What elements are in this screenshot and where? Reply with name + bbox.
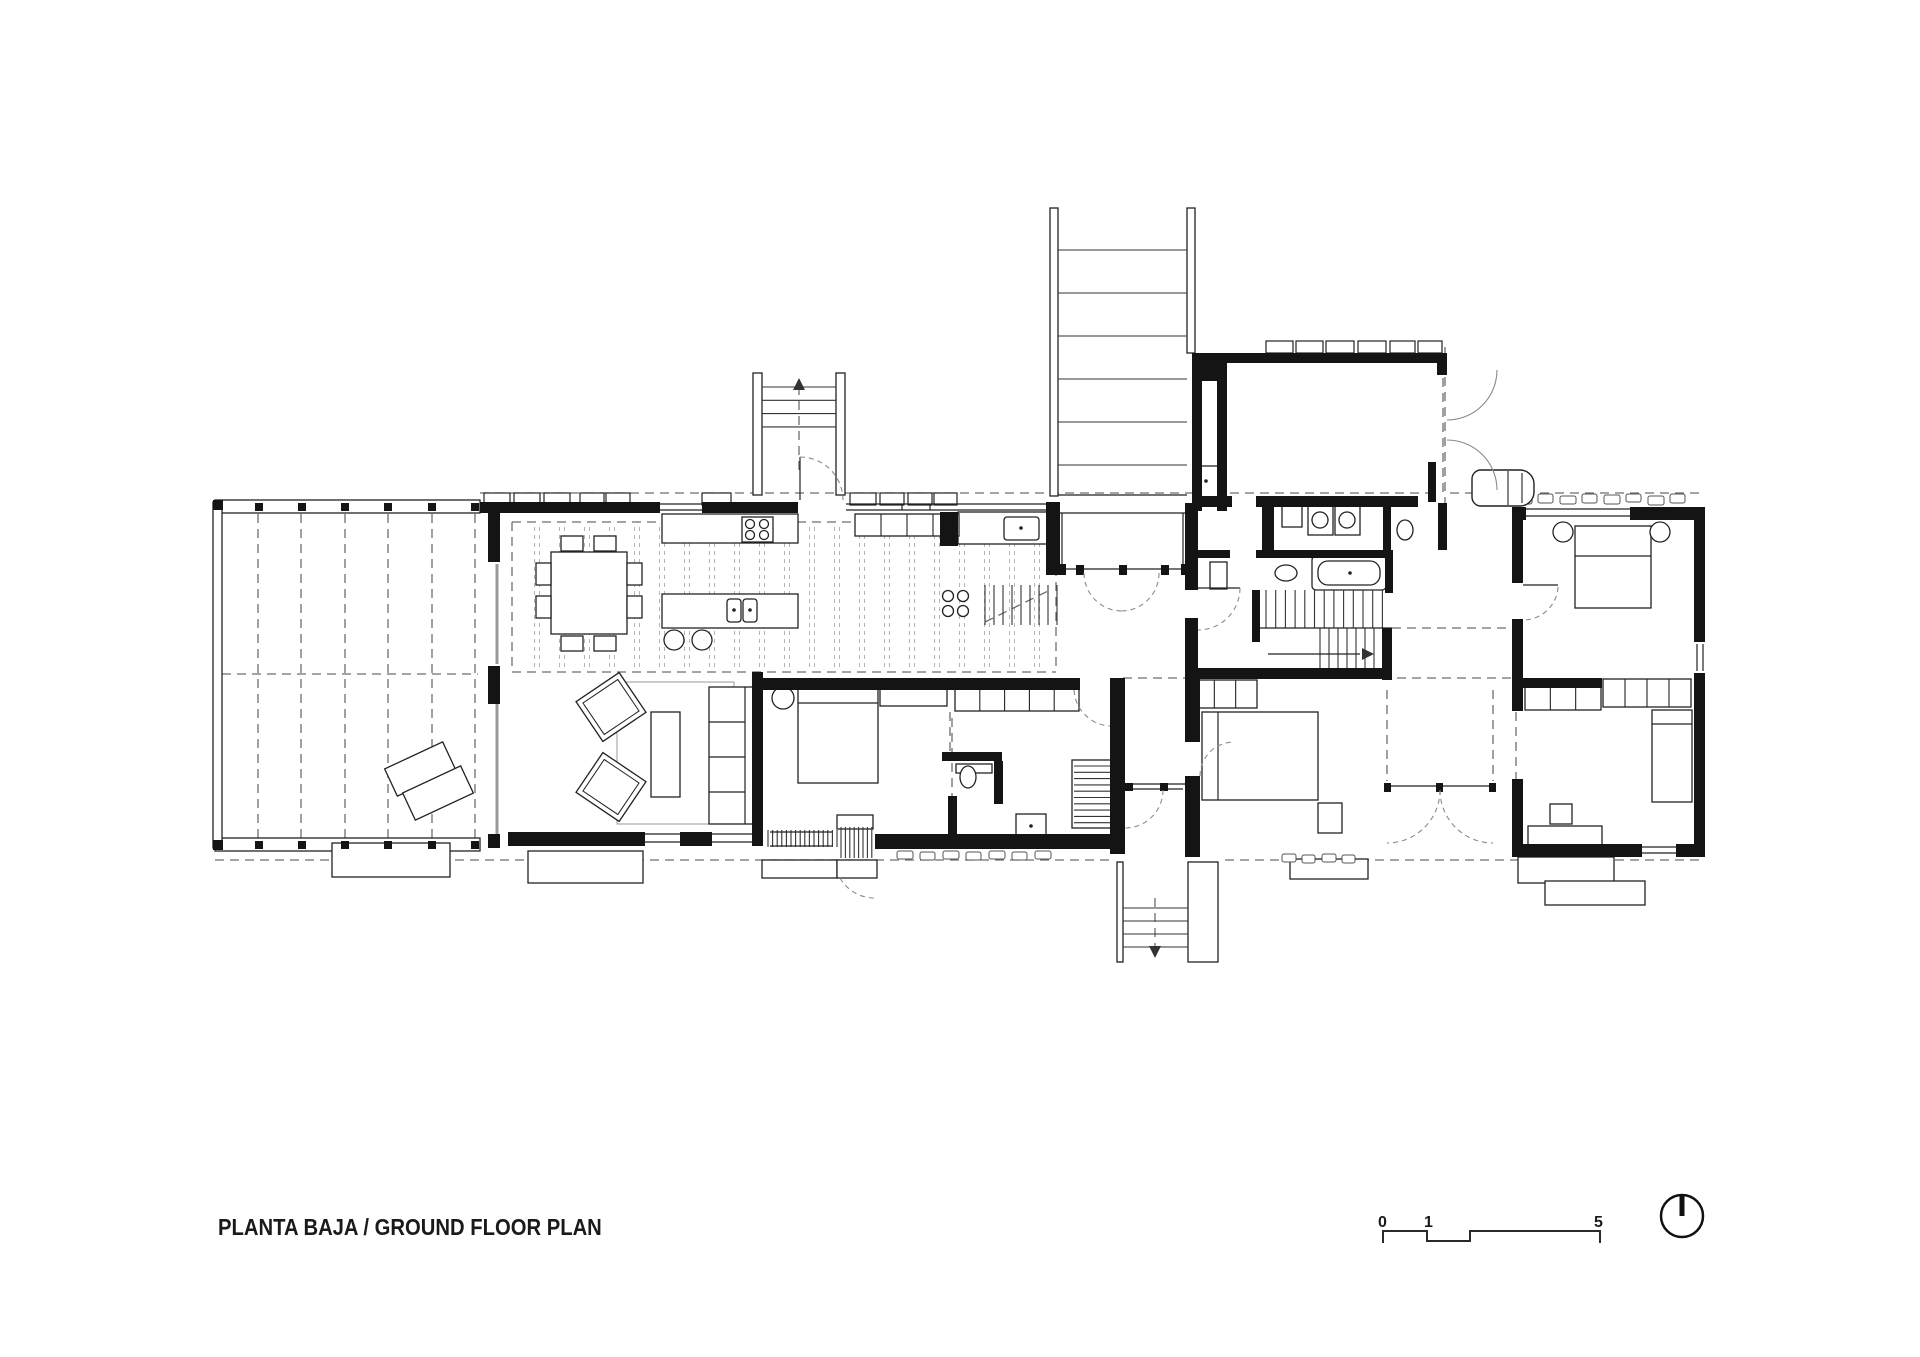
chair bbox=[1550, 804, 1572, 824]
wall bbox=[384, 503, 392, 511]
wall bbox=[763, 678, 1080, 690]
wall bbox=[1385, 550, 1393, 593]
door-swing bbox=[1121, 573, 1159, 611]
north-compass-icon bbox=[1661, 1195, 1703, 1237]
paving-stone bbox=[1648, 496, 1664, 505]
wall bbox=[341, 503, 349, 511]
wall bbox=[1185, 776, 1200, 857]
fixture bbox=[760, 520, 769, 529]
door-swing bbox=[1387, 790, 1440, 843]
toilet bbox=[1275, 565, 1297, 581]
chair bbox=[594, 536, 616, 551]
entry-step bbox=[1518, 857, 1614, 883]
deck-west-edge bbox=[213, 502, 222, 848]
entry-step bbox=[1545, 881, 1645, 905]
paving-stone bbox=[1322, 854, 1336, 862]
stair-rail bbox=[1117, 862, 1123, 962]
wall bbox=[488, 502, 500, 562]
rotated-furniture bbox=[385, 673, 646, 822]
fixture bbox=[1339, 512, 1355, 528]
window-sill bbox=[1390, 341, 1415, 353]
wall bbox=[1119, 565, 1127, 575]
planter bbox=[528, 851, 643, 883]
wall bbox=[702, 502, 798, 513]
wall bbox=[1262, 503, 1274, 550]
door-swing bbox=[1440, 790, 1493, 843]
wall bbox=[213, 840, 223, 850]
wall bbox=[488, 666, 500, 704]
paving-stone bbox=[1012, 852, 1027, 860]
fixture bbox=[1553, 522, 1573, 542]
wall bbox=[1192, 353, 1227, 381]
wall bbox=[1110, 678, 1125, 854]
dining-table bbox=[551, 552, 627, 634]
wall bbox=[1437, 353, 1447, 375]
fixture bbox=[1650, 522, 1670, 542]
paving-stone bbox=[1538, 494, 1553, 503]
wardrobe bbox=[955, 687, 1079, 711]
wall bbox=[471, 503, 479, 511]
paving-stone bbox=[966, 852, 981, 860]
bed bbox=[1575, 526, 1651, 608]
wall bbox=[1076, 565, 1084, 575]
wall bbox=[1512, 619, 1523, 711]
car bbox=[1472, 470, 1534, 506]
armchair bbox=[576, 673, 646, 742]
wall bbox=[1438, 503, 1447, 550]
wall bbox=[1383, 503, 1391, 550]
window-sill bbox=[1418, 341, 1442, 353]
wall bbox=[1185, 503, 1198, 590]
direction-arrow bbox=[1149, 946, 1161, 958]
chair bbox=[561, 636, 583, 651]
wall bbox=[1382, 628, 1392, 680]
window-sill bbox=[1358, 341, 1386, 353]
wall bbox=[942, 752, 1002, 761]
wall bbox=[1630, 507, 1705, 520]
wall bbox=[508, 832, 645, 846]
bed bbox=[1202, 712, 1318, 800]
wardrobe bbox=[1525, 687, 1601, 710]
wall bbox=[940, 512, 958, 546]
wall bbox=[875, 834, 1112, 849]
wardrobe bbox=[1193, 680, 1257, 708]
wall bbox=[1185, 678, 1200, 742]
wall bbox=[1512, 844, 1642, 857]
chair bbox=[627, 563, 642, 585]
wall bbox=[1694, 673, 1705, 857]
wall bbox=[428, 503, 436, 511]
door-swings bbox=[800, 370, 1558, 898]
paving-stone bbox=[1626, 494, 1641, 502]
wall bbox=[1676, 844, 1705, 857]
drawing-sheet: 0 1 5 PLANTA BAJA / GROUND FLOOR PLAN bbox=[0, 0, 1920, 1357]
wall bbox=[480, 502, 660, 513]
window-sill bbox=[934, 493, 957, 505]
window-sill bbox=[880, 493, 904, 505]
wall bbox=[341, 841, 349, 849]
window-sill bbox=[1296, 341, 1323, 353]
wall bbox=[752, 672, 763, 846]
chair bbox=[594, 636, 616, 651]
wall bbox=[213, 500, 223, 510]
wall bbox=[255, 841, 263, 849]
wall bbox=[1161, 565, 1169, 575]
fixture bbox=[692, 630, 712, 650]
toilet bbox=[960, 766, 976, 788]
paving-stone bbox=[1282, 854, 1296, 862]
paving-stone bbox=[1342, 855, 1355, 863]
door-swing bbox=[840, 878, 877, 898]
wall bbox=[994, 761, 1003, 804]
window-sill bbox=[850, 493, 876, 505]
scale-label-5: 5 bbox=[1594, 1214, 1603, 1231]
stair-landing bbox=[1188, 862, 1218, 962]
stair-box bbox=[1072, 760, 1113, 828]
direction-arrow bbox=[793, 378, 805, 390]
window-sill bbox=[1266, 341, 1293, 353]
paving-stone bbox=[897, 851, 913, 859]
armchair bbox=[576, 753, 646, 822]
wall bbox=[384, 841, 392, 849]
wall bbox=[471, 841, 479, 849]
wall bbox=[298, 503, 306, 511]
planter bbox=[762, 860, 837, 878]
wall bbox=[1512, 507, 1523, 583]
wall bbox=[948, 796, 957, 849]
chair bbox=[536, 563, 551, 585]
wall bbox=[1522, 678, 1602, 688]
paving-stone bbox=[989, 851, 1005, 859]
paving-stone bbox=[1302, 855, 1315, 863]
detail-lines bbox=[645, 457, 1703, 853]
fixture bbox=[1312, 512, 1328, 528]
fixture bbox=[746, 531, 755, 540]
desk bbox=[1318, 803, 1342, 833]
wall bbox=[1193, 668, 1383, 679]
door-swing bbox=[1198, 588, 1240, 630]
wall bbox=[255, 503, 263, 511]
wall bbox=[298, 841, 306, 849]
floor-plan-drawing: 0 1 5 bbox=[0, 0, 1920, 1357]
wall bbox=[1046, 564, 1066, 575]
laundry-cabinet bbox=[1282, 505, 1302, 527]
bench bbox=[837, 815, 873, 829]
paving-stone bbox=[1604, 495, 1620, 504]
wall bbox=[1384, 783, 1391, 792]
fixture bbox=[746, 520, 755, 529]
paving-stone bbox=[1670, 494, 1685, 503]
chair bbox=[561, 536, 583, 551]
stair-rail bbox=[1187, 208, 1195, 353]
paving-stone bbox=[1035, 851, 1051, 859]
sofa bbox=[709, 687, 753, 824]
gate-swing bbox=[1447, 370, 1497, 420]
fixture bbox=[760, 531, 769, 540]
wall bbox=[1428, 462, 1436, 502]
chair bbox=[536, 596, 551, 618]
wall bbox=[1125, 783, 1133, 791]
wall bbox=[1160, 783, 1168, 791]
window-sill bbox=[908, 493, 932, 505]
fixture bbox=[958, 591, 969, 602]
scale-bar: 0 1 5 bbox=[1378, 1214, 1603, 1243]
door-swing bbox=[1125, 790, 1163, 828]
paving-stone bbox=[1582, 494, 1597, 503]
window-sills bbox=[484, 341, 1442, 505]
page-title: PLANTA BAJA / GROUND FLOOR PLAN bbox=[218, 1214, 602, 1241]
paving-stone bbox=[1560, 496, 1576, 504]
wall bbox=[1198, 550, 1230, 558]
coffee-table bbox=[651, 712, 680, 797]
direction-arrow bbox=[1362, 648, 1374, 660]
wall bbox=[1256, 496, 1418, 507]
fixture bbox=[664, 630, 684, 650]
stair-rail bbox=[836, 373, 845, 495]
chair bbox=[627, 596, 642, 618]
car bbox=[1472, 470, 1534, 506]
scale-label-1: 1 bbox=[1424, 1214, 1433, 1231]
door-swing bbox=[1084, 573, 1122, 611]
door-swing bbox=[1523, 587, 1558, 620]
wall bbox=[1256, 550, 1385, 558]
wall bbox=[488, 834, 500, 848]
stair-rail bbox=[753, 373, 762, 495]
vanity bbox=[1210, 562, 1227, 589]
wall bbox=[1192, 381, 1202, 511]
toilet bbox=[1397, 520, 1413, 540]
wall bbox=[1225, 353, 1447, 363]
paving-stone bbox=[943, 851, 959, 859]
window-sill bbox=[1326, 341, 1354, 353]
wall bbox=[1252, 590, 1260, 642]
wall bbox=[1217, 381, 1227, 511]
stair-rail bbox=[1050, 208, 1058, 496]
wall bbox=[680, 832, 712, 846]
fixture bbox=[772, 687, 794, 709]
fixture bbox=[958, 606, 969, 617]
wall bbox=[428, 841, 436, 849]
fixture bbox=[943, 591, 954, 602]
scale-label-0: 0 bbox=[1378, 1214, 1387, 1231]
wall bbox=[1694, 507, 1705, 642]
paving-stone bbox=[920, 852, 935, 860]
kitchen-counter bbox=[662, 514, 798, 543]
planter bbox=[837, 860, 877, 878]
wall bbox=[1489, 783, 1496, 792]
fixture bbox=[943, 606, 954, 617]
